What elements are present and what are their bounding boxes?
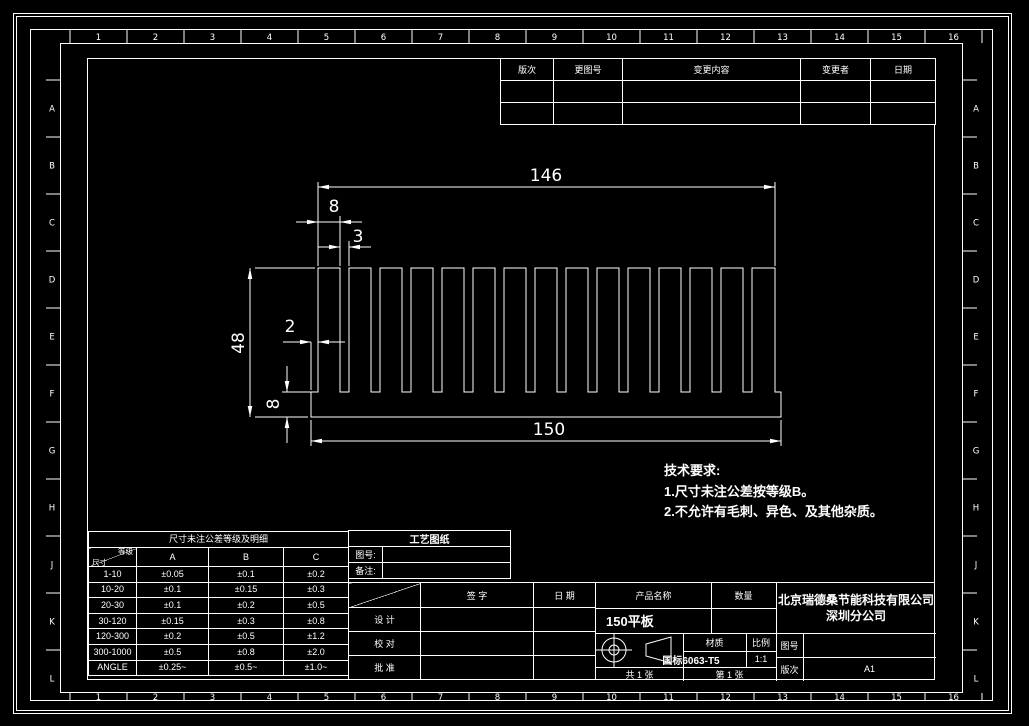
- tolerance-value: ±0.2: [137, 629, 209, 645]
- tolerance-range: 1-10: [89, 567, 137, 583]
- process-drawingno-value: [383, 547, 511, 563]
- tolerance-value: ±0.8: [284, 613, 349, 629]
- tolerance-corner-cell: 等级 尺寸: [89, 548, 137, 567]
- quantity-value: [711, 608, 776, 633]
- tolerance-row: 10-20±0.1±0.15±0.3: [89, 582, 349, 598]
- material-value: 国标6063-T5: [636, 651, 746, 667]
- revision-table: 版次 更图号 变更内容 变更者 日期: [500, 58, 936, 125]
- scale-value: 1:1: [746, 651, 776, 667]
- tolerance-value: ±0.3: [209, 613, 284, 629]
- technical-requirements: 技术要求: 1.尺寸未注公差按等级B。 2.不允许有毛刺、异色、及其他杂质。: [664, 461, 994, 523]
- techreq-item-2: 2.不允许有毛刺、异色、及其他杂质。: [664, 502, 994, 523]
- tolerance-value: ±0.25~: [137, 660, 209, 676]
- tolerance-range: 10-20: [89, 582, 137, 598]
- tolerance-range: 30-120: [89, 613, 137, 629]
- drawing-no-label: 图号: [776, 633, 803, 657]
- revision-label: 版次: [776, 657, 803, 681]
- design-date-cell: [534, 608, 596, 632]
- tolerance-col-a: A: [137, 548, 209, 567]
- tolerance-row: 1-10±0.05±0.1±0.2: [89, 567, 349, 583]
- scale-label: 比例: [746, 633, 776, 651]
- tolerance-row: 120-300±0.2±0.5±1.2: [89, 629, 349, 645]
- signature-corner-cell: [349, 583, 421, 608]
- revision-col-version: 版次: [501, 59, 554, 81]
- techreq-title: 技术要求:: [664, 461, 994, 482]
- tolerance-value: ±0.3: [284, 582, 349, 598]
- tolerance-value: ±0.5: [209, 629, 284, 645]
- process-drawing-box: 工艺图纸 图号: 备注:: [348, 530, 511, 579]
- sheet-total: 共 1 张: [596, 667, 683, 681]
- revision-value: A1: [803, 657, 936, 681]
- row-design-label: 设 计: [349, 608, 421, 632]
- tolerance-row: 20-30±0.1±0.2±0.5: [89, 598, 349, 614]
- techreq-item-1: 1.尺寸未注公差按等级B。: [664, 482, 994, 503]
- tolerance-range: 120-300: [89, 629, 137, 645]
- tolerance-value: ±0.5~: [209, 660, 284, 676]
- cad-sheet: 146 8 3 48 2: [0, 0, 1029, 726]
- corner-grade-label: 等级: [118, 548, 133, 556]
- approve-date-cell: [534, 656, 596, 680]
- quantity-label: 数量: [711, 583, 776, 608]
- tolerance-col-c: C: [284, 548, 349, 567]
- tolerance-value: ±0.15: [209, 582, 284, 598]
- tolerance-value: ±1.2: [284, 629, 349, 645]
- tolerance-range: ANGLE: [89, 660, 137, 676]
- tolerance-range: 300-1000: [89, 644, 137, 660]
- approve-sign-cell: [421, 656, 534, 680]
- tolerance-value: ±1.0~: [284, 660, 349, 676]
- tolerance-value: ±0.5: [137, 644, 209, 660]
- tolerance-value: ±2.0: [284, 644, 349, 660]
- tolerance-range: 20-30: [89, 598, 137, 614]
- tolerance-value: ±0.05: [137, 567, 209, 583]
- product-name-label: 产品名称: [596, 583, 711, 608]
- tolerance-value: ±0.8: [209, 644, 284, 660]
- revision-col-changer: 变更者: [801, 59, 871, 81]
- row-check-label: 校 对: [349, 632, 421, 656]
- company-line-1: 北京瑞德桑节能科技有限公司: [778, 592, 934, 608]
- tolerance-col-b: B: [209, 548, 284, 567]
- revision-col-date: 日期: [871, 59, 936, 81]
- signature-table: 签 字 日 期 设 计 校 对 批 准: [348, 582, 596, 680]
- tolerance-value: ±0.1: [137, 582, 209, 598]
- tolerance-table-title: 尺寸未注公差等级及明细: [89, 532, 349, 548]
- sheet-number: 第 1 张: [683, 667, 776, 681]
- signature-col-sign: 签 字: [421, 583, 534, 608]
- tolerance-row: ANGLE±0.25~±0.5~±1.0~: [89, 660, 349, 676]
- tolerance-table: 尺寸未注公差等级及明细 等级 尺寸 A B C 1-10±0.05±0.1±0.…: [88, 531, 349, 676]
- tolerance-value: ±0.2: [209, 598, 284, 614]
- title-block: 产品名称 数量 150平板 北京瑞德桑节能科技有限公司 深圳分公司 材质 比例 …: [595, 582, 935, 680]
- company-name: 北京瑞德桑节能科技有限公司 深圳分公司: [776, 583, 936, 633]
- tolerance-value: ±0.5: [284, 598, 349, 614]
- company-line-2: 深圳分公司: [826, 608, 886, 624]
- process-remark-label: 备注:: [349, 563, 383, 579]
- row-approve-label: 批 准: [349, 656, 421, 680]
- revision-col-content: 变更内容: [623, 59, 801, 81]
- tolerance-value: ±0.2: [284, 567, 349, 583]
- tolerance-row: 300-1000±0.5±0.8±2.0: [89, 644, 349, 660]
- signature-col-date: 日 期: [534, 583, 596, 608]
- tolerance-row: 30-120±0.15±0.3±0.8: [89, 613, 349, 629]
- revision-empty-row: [501, 103, 936, 125]
- tolerance-value: ±0.15: [137, 613, 209, 629]
- tolerance-value: ±0.1: [137, 598, 209, 614]
- revision-empty-row: [501, 81, 936, 103]
- process-remark-value: [383, 563, 511, 579]
- drawing-no-value: [803, 633, 936, 657]
- check-date-cell: [534, 632, 596, 656]
- material-label: 材质: [683, 633, 746, 651]
- check-sign-cell: [421, 632, 534, 656]
- process-drawingno-label: 图号:: [349, 547, 383, 563]
- design-sign-cell: [421, 608, 534, 632]
- corner-size-label: 尺寸: [92, 559, 107, 567]
- revision-col-drawingno: 更图号: [554, 59, 623, 81]
- tolerance-value: ±0.1: [209, 567, 284, 583]
- process-box-title: 工艺图纸: [349, 531, 511, 547]
- product-name-value: 150平板: [598, 608, 719, 633]
